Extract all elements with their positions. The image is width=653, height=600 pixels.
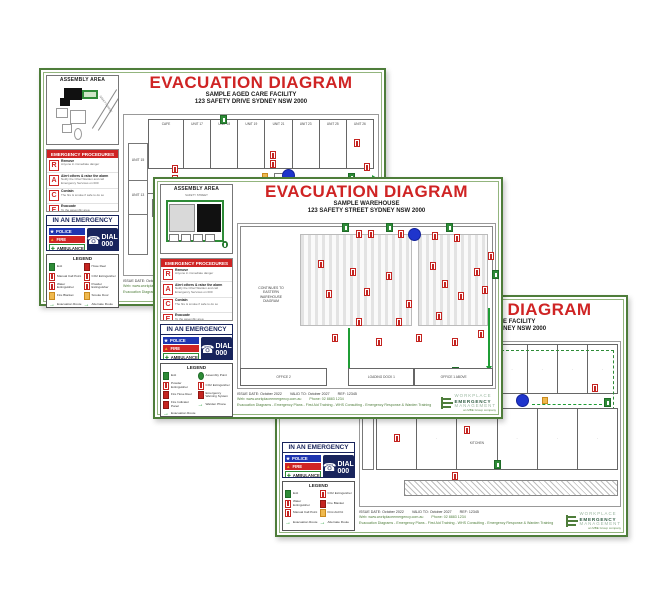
fire-row: ▲FIRE bbox=[49, 236, 85, 243]
fire-extinguisher-icon bbox=[326, 290, 332, 298]
evacuation-route-icon: → bbox=[163, 410, 169, 417]
fire-extinguisher-icon bbox=[332, 334, 338, 342]
legend-label: Assembly Point bbox=[206, 374, 227, 377]
race-letter: E bbox=[49, 205, 59, 212]
fire-extinguisher-icon bbox=[454, 234, 460, 242]
room-number-dot: · bbox=[538, 436, 577, 441]
evacuation-route bbox=[348, 328, 350, 370]
room-label: OFFICE 1 ABOVE bbox=[415, 375, 492, 379]
dial-number: 000 bbox=[337, 468, 349, 475]
race-row-evacuate: E EvacuateTo the assembly area bbox=[161, 313, 232, 321]
emergency-procedures-panel: EMERGENCY PROCEDURES R RemoveAnyone in i… bbox=[160, 258, 233, 321]
assembly-point-icon bbox=[222, 241, 228, 248]
race-sub: To the assembly area bbox=[61, 208, 90, 212]
fire-label: FIRE bbox=[292, 464, 302, 469]
fire-extinguisher-icon bbox=[376, 338, 382, 346]
room-label: UNIT 21 bbox=[265, 122, 291, 126]
dial-label: DIAL bbox=[215, 343, 231, 350]
water-extinguisher-icon bbox=[285, 500, 291, 508]
racking-block bbox=[300, 234, 412, 326]
fire-extinguisher-icon bbox=[430, 262, 436, 270]
logo-tagline: an MBE Group company bbox=[455, 409, 496, 412]
assembly-area-panel: ASSEMBLY AREA SAFETY STREET bbox=[160, 184, 233, 254]
sidebar: ASSEMBLY AREA SAFETY DRIVE EMERGENCY PRO… bbox=[46, 75, 119, 299]
legend-label: Powder Extinguisher bbox=[92, 283, 117, 289]
fire-extinguisher-icon bbox=[364, 163, 370, 171]
race-letter: R bbox=[163, 269, 173, 280]
room-number-dot: · bbox=[417, 436, 456, 441]
race-sub: Notify the Chief Warden and call Emergen… bbox=[61, 177, 104, 185]
evacuation-route bbox=[488, 308, 490, 366]
wem-logo-icon bbox=[566, 515, 578, 527]
logo-tagline: an MBE Group company bbox=[580, 527, 621, 530]
you-are-here-marker bbox=[408, 228, 421, 241]
page-footer: ISSUE DATE: October 2022VALID TO: Octobe… bbox=[359, 510, 621, 531]
legend-label: Evacuation Route bbox=[57, 303, 81, 306]
police-row: ★POLICE bbox=[285, 455, 321, 462]
race-letter: C bbox=[49, 190, 59, 201]
police-icon: ★ bbox=[164, 338, 168, 344]
fire-extinguisher-icon bbox=[270, 160, 276, 168]
room-number-dot: · bbox=[578, 436, 617, 441]
race-letter: E bbox=[163, 314, 173, 321]
room-label: UNIT 17 bbox=[184, 122, 210, 126]
first-aid-kit-icon bbox=[320, 509, 326, 517]
manual-call-point-icon bbox=[49, 273, 55, 281]
exit-icon bbox=[492, 270, 499, 279]
ambulance-cross-icon: ✚ bbox=[165, 355, 169, 361]
in-emergency-panel: IN AN EMERGENCY ★POLICE ▲FIRE ✚AMBULANCE… bbox=[160, 324, 233, 360]
race-row-remove: R RemoveAnyone in immediate danger bbox=[47, 158, 118, 173]
page-title: EVACUATION DIAGRAM bbox=[123, 74, 379, 92]
assembly-point-icon bbox=[198, 372, 204, 380]
evacuation-route-icon: → bbox=[285, 519, 291, 527]
exit-icon bbox=[446, 223, 453, 232]
exit-icon bbox=[342, 223, 349, 232]
dial-000-box: ☎ DIAL000 bbox=[87, 228, 118, 251]
wem-logo: WORKPLACEEMERGENCYMANAGEMENTan MBE Group… bbox=[441, 394, 496, 412]
ambulance-row: ✚AMBULANCE bbox=[49, 244, 85, 251]
ambulance-cross-icon: ✚ bbox=[51, 246, 55, 252]
exit-icon bbox=[386, 223, 393, 232]
dial-000-box: ☎ DIAL000 bbox=[201, 337, 232, 360]
ambulance-cross-icon: ✚ bbox=[287, 473, 291, 479]
legend-label: Hose Reel bbox=[92, 265, 106, 268]
legend-label: Fire Hose Reel bbox=[171, 393, 192, 396]
race-sub: Anyone in immediate danger bbox=[175, 271, 213, 275]
fire-icon: ▲ bbox=[164, 346, 168, 351]
page-title: EVACUATION DIAGRAM bbox=[237, 183, 496, 201]
fire-extinguisher-icon bbox=[172, 165, 178, 173]
exit-icon bbox=[604, 398, 611, 407]
legend-label: Fire Indicator Panel bbox=[171, 401, 196, 407]
fire-extinguisher-icon bbox=[474, 268, 480, 276]
fire-extinguisher-icon bbox=[364, 288, 370, 296]
page-subtitle: SAMPLE AGED CARE FACILITY bbox=[123, 92, 379, 99]
manual-call-point-icon bbox=[285, 509, 291, 517]
rooms-bottom-band: OFFICE 2 LOADING DOCK 1 OFFICE 1 ABOVE bbox=[240, 368, 493, 386]
assembly-area-header: ASSEMBLY AREA bbox=[161, 185, 232, 192]
fire-icon: ▲ bbox=[50, 237, 54, 242]
sidebar: ASSEMBLY AREA SAFETY STREET EMERGENCY P bbox=[160, 184, 233, 412]
room-label: CAFE bbox=[149, 122, 183, 126]
wem-logo-icon bbox=[441, 397, 453, 409]
fire-icon: ▲ bbox=[286, 464, 290, 469]
fire-extinguisher-icon bbox=[386, 272, 392, 280]
procedures-header: EMERGENCY PROCEDURES bbox=[47, 150, 118, 158]
hose-reel-icon bbox=[84, 263, 90, 271]
legend-header: LEGEND bbox=[283, 482, 354, 489]
legend-label: Exit bbox=[293, 492, 298, 495]
co2-extinguisher-icon bbox=[320, 490, 326, 498]
legend-header: LEGEND bbox=[161, 364, 232, 371]
page-warehouse: ASSEMBLY AREA SAFETY STREET EMERGENCY P bbox=[153, 177, 503, 419]
fire-extinguisher-icon bbox=[318, 260, 324, 268]
ambulance-label: AMBULANCE bbox=[293, 473, 320, 478]
room-label: LOADING DOCK 1 bbox=[349, 375, 413, 379]
room-label: UNIT 26 bbox=[347, 122, 373, 126]
wem-logo: WORKPLACEEMERGENCYMANAGEMENTan MBE Group… bbox=[566, 512, 621, 530]
race-row-contain: C ContainThe fire & smoke if safe to do … bbox=[47, 189, 118, 204]
race-row-alert: A Alert others & raise the alarmNotify t… bbox=[47, 173, 118, 189]
fire-extinguisher-icon bbox=[406, 300, 412, 308]
legend-label: First Aid Kit bbox=[328, 511, 344, 514]
legend-label: Water Extinguisher bbox=[293, 500, 318, 506]
in-emergency-panel: IN AN EMERGENCY ★POLICE ▲FIRE ✚AMBULANCE… bbox=[282, 442, 355, 478]
police-icon: ★ bbox=[286, 456, 290, 462]
co2-extinguisher-icon bbox=[84, 273, 90, 281]
legend-label: CO2 Extinguisher bbox=[92, 275, 116, 278]
fire-extinguisher-icon bbox=[488, 252, 494, 260]
fire-extinguisher-icon bbox=[452, 338, 458, 346]
police-icon: ★ bbox=[50, 229, 54, 235]
fire-extinguisher-icon bbox=[452, 472, 458, 480]
fire-extinguisher-icon bbox=[354, 139, 360, 147]
in-emergency-panel: IN AN EMERGENCY ★POLICE ▲FIRE ✚AMBULANCE… bbox=[46, 215, 119, 251]
procedures-header: EMERGENCY PROCEDURES bbox=[161, 259, 232, 267]
ambulance-row: ✚AMBULANCE bbox=[163, 353, 199, 360]
legend-label: Smoke Door bbox=[92, 294, 109, 297]
police-label: POLICE bbox=[292, 456, 308, 461]
page-address: 123 SAFETY STREET SYDNEY NSW 2000 bbox=[237, 208, 496, 215]
race-letter: R bbox=[49, 160, 59, 171]
legend-label: Fire Blanket bbox=[57, 294, 74, 297]
legend-label: Manual Call Point bbox=[57, 275, 81, 278]
fire-extinguisher-icon bbox=[458, 292, 464, 300]
race-row-remove: R RemoveAnyone in immediate danger bbox=[161, 267, 232, 282]
in-emergency-header: IN AN EMERGENCY bbox=[283, 443, 354, 453]
dial-number: 000 bbox=[101, 241, 113, 248]
legend-label: Alternate Route bbox=[92, 303, 114, 306]
fire-extinguisher-icon bbox=[356, 230, 362, 238]
legend-label: Exit bbox=[57, 265, 62, 268]
dial-number: 000 bbox=[215, 350, 227, 357]
dial-000-box: ☎ DIAL000 bbox=[323, 455, 354, 478]
race-sub: Anyone in immediate danger bbox=[61, 162, 99, 166]
racking-block bbox=[418, 234, 488, 326]
floor-plan: CONTINUES TO EASTERN WAREHOUSE DIAGRAM bbox=[237, 223, 496, 389]
fire-row: ▲FIRE bbox=[163, 345, 199, 352]
legend-label: Emergency Warning System bbox=[206, 392, 231, 398]
exit-icon bbox=[49, 263, 55, 271]
fire-extinguisher-icon bbox=[432, 232, 438, 240]
fire-hose-reel-icon bbox=[163, 391, 169, 399]
race-row-contain: C ContainThe fire & smoke if safe to do … bbox=[161, 298, 232, 313]
assembly-map: SAFETY STREET bbox=[164, 193, 229, 250]
assembly-map: SAFETY DRIVE bbox=[50, 84, 115, 141]
veranda-hatched bbox=[404, 480, 618, 496]
exit-icon bbox=[285, 490, 291, 498]
legend-panel: LEGEND Exit Hose Reel Manual Call Point … bbox=[46, 254, 119, 308]
fire-extinguisher-icon bbox=[368, 230, 374, 238]
ambulance-label: AMBULANCE bbox=[57, 246, 84, 251]
alternate-route-icon: → bbox=[320, 519, 326, 527]
phone-icon: ☎ bbox=[87, 236, 101, 247]
race-row-evacuate: E EvacuateTo the assembly area bbox=[47, 204, 118, 212]
legend-label: Manual Call Point bbox=[293, 511, 317, 514]
legend-label: Water Extinguisher bbox=[57, 283, 82, 289]
page-footer: ISSUE DATE: October 2022VALID TO: Octobe… bbox=[237, 392, 496, 413]
legend-panel: LEGEND Exit CO2 Extinguisher Water Extin… bbox=[282, 481, 355, 531]
legend-label: Fire Blanket bbox=[328, 502, 345, 505]
fire-extinguisher-icon bbox=[436, 312, 442, 320]
warden-phone-icon: → bbox=[198, 401, 204, 409]
fire-blanket-icon bbox=[320, 500, 326, 508]
police-row: ★POLICE bbox=[163, 337, 199, 344]
powder-extinguisher-icon bbox=[84, 282, 90, 290]
ewis-icon bbox=[198, 391, 204, 399]
emergency-procedures-panel: EMERGENCY PROCEDURES R RemoveAnyone in i… bbox=[46, 149, 119, 212]
first-aid-kit-icon bbox=[542, 397, 548, 404]
room-number-dot: · bbox=[498, 436, 537, 441]
fire-extinguisher-icon bbox=[350, 268, 356, 276]
room-label: UNIT 13 bbox=[129, 193, 147, 197]
street-label: SAFETY STREET bbox=[164, 193, 229, 197]
legend-label: CO2 Extinguisher bbox=[206, 384, 230, 387]
evacuation-route-icon: → bbox=[49, 301, 55, 308]
race-sub: To the assembly area bbox=[175, 317, 204, 321]
smoke-door-icon bbox=[84, 292, 90, 300]
in-emergency-header: IN AN EMERGENCY bbox=[47, 216, 118, 226]
continues-note: CONTINUES TO EASTERN WAREHOUSE DIAGRAM bbox=[244, 286, 298, 303]
rooms-top-band: CAFE UNIT 17 UNIT 18 UNIT 19 UNIT 21 UNI… bbox=[148, 119, 374, 169]
room-label: UNIT 25 bbox=[320, 122, 346, 126]
fire-extinguisher-icon bbox=[356, 318, 362, 326]
legend-label: Exit bbox=[171, 374, 176, 377]
room-label: UNIT 23 bbox=[293, 122, 319, 126]
powder-extinguisher-icon bbox=[163, 382, 169, 390]
fire-extinguisher-icon bbox=[482, 286, 488, 294]
fire-extinguisher-icon bbox=[592, 384, 598, 392]
police-label: POLICE bbox=[56, 229, 72, 234]
exit-icon bbox=[220, 115, 227, 124]
legend-header: LEGEND bbox=[47, 255, 118, 262]
fire-extinguisher-icon bbox=[416, 334, 422, 342]
fire-row: ▲FIRE bbox=[285, 463, 321, 470]
phone-icon: ☎ bbox=[201, 345, 215, 356]
assembly-area-header: ASSEMBLY AREA bbox=[47, 76, 118, 83]
page-subtitle: SAMPLE WAREHOUSE bbox=[237, 201, 496, 208]
phone-icon: ☎ bbox=[323, 463, 337, 474]
assembly-highlight bbox=[82, 90, 98, 99]
legend-label: Evacuation Route bbox=[171, 412, 195, 415]
alternate-route-icon: → bbox=[84, 301, 90, 308]
exit-icon bbox=[494, 460, 501, 469]
room-label: UNIT 19 bbox=[238, 122, 264, 126]
services-list: Evacuation Diagrams - Emergency Plans - … bbox=[237, 403, 431, 408]
you-are-here-marker bbox=[516, 394, 529, 407]
dial-label: DIAL bbox=[101, 234, 117, 241]
legend-panel: LEGEND Exit Assembly Point Powder Exting… bbox=[160, 363, 233, 417]
ambulance-label: AMBULANCE bbox=[171, 355, 198, 360]
legend-label: Warden Phone bbox=[206, 403, 227, 406]
room-label: OFFICE 2 bbox=[241, 375, 326, 379]
legend-label: Powder Extinguisher bbox=[171, 382, 196, 388]
race-row-alert: A Alert others & raise the alarmNotify t… bbox=[161, 282, 232, 298]
race-sub: The fire & smoke if safe to do so bbox=[61, 193, 104, 197]
race-letter: A bbox=[163, 284, 173, 295]
police-label: POLICE bbox=[170, 338, 186, 343]
room-label: UNIT 15 bbox=[129, 158, 147, 162]
legend-label: Evacuation Route bbox=[293, 521, 317, 524]
exit-icon bbox=[163, 372, 169, 380]
race-letter: A bbox=[49, 175, 59, 186]
services-list: Evacuation Diagrams - Emergency Plans - … bbox=[359, 521, 553, 526]
water-extinguisher-icon bbox=[49, 282, 55, 290]
fire-extinguisher-icon bbox=[270, 151, 276, 159]
document-pile: ASSEMBLY AREA SAFETY DRIVE EMERGENCY PRO… bbox=[0, 0, 653, 600]
evacuation-route-dashed bbox=[532, 404, 602, 405]
race-letter: C bbox=[163, 299, 173, 310]
fire-extinguisher-icon bbox=[464, 426, 470, 434]
fire-extinguisher-icon bbox=[442, 280, 448, 288]
page-address: 123 SAFETY DRIVE SYDNEY NSW 2000 bbox=[123, 99, 379, 106]
in-emergency-header: IN AN EMERGENCY bbox=[161, 325, 232, 335]
kitchen-label: KITCHEN bbox=[457, 441, 496, 445]
co2-extinguisher-icon bbox=[198, 382, 204, 390]
assembly-area-panel: ASSEMBLY AREA SAFETY DRIVE bbox=[46, 75, 119, 145]
fire-extinguisher-icon bbox=[394, 434, 400, 442]
fire-extinguisher-icon bbox=[398, 230, 404, 238]
fire-blanket-icon bbox=[49, 292, 55, 300]
fire-label: FIRE bbox=[56, 237, 66, 242]
race-sub: Notify the Chief Warden and call Emergen… bbox=[175, 286, 218, 294]
legend-label: CO2 Extinguisher bbox=[328, 492, 352, 495]
dial-label: DIAL bbox=[337, 461, 353, 468]
fire-label: FIRE bbox=[170, 346, 180, 351]
legend-label: Alternate Route bbox=[328, 521, 350, 524]
fire-extinguisher-icon bbox=[396, 318, 402, 326]
fire-indicator-panel-icon bbox=[163, 401, 169, 409]
fire-extinguisher-icon bbox=[478, 330, 484, 338]
police-row: ★POLICE bbox=[49, 228, 85, 235]
race-sub: The fire & smoke if safe to do so bbox=[175, 302, 218, 306]
left-wing: UNIT 15 UNIT 13 bbox=[128, 143, 148, 255]
ambulance-row: ✚AMBULANCE bbox=[285, 471, 321, 478]
